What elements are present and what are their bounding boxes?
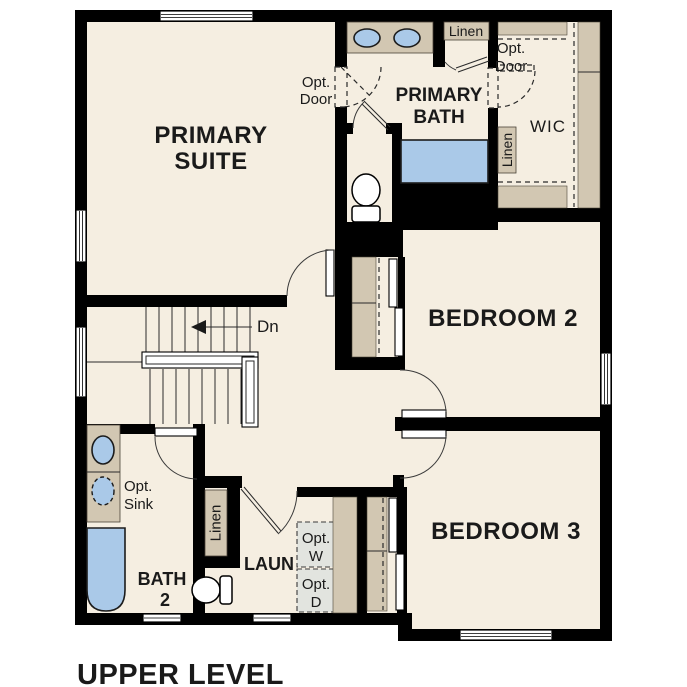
wall bbox=[337, 222, 403, 257]
wall bbox=[335, 257, 352, 360]
closet-shelf bbox=[367, 497, 387, 611]
label-laundry: LAUN bbox=[244, 554, 294, 574]
label-linen-top: Linen bbox=[449, 23, 483, 39]
wall bbox=[393, 475, 404, 488]
wall bbox=[75, 10, 87, 625]
closet-rod bbox=[578, 22, 600, 208]
label-bath2: 2 bbox=[160, 590, 170, 610]
label-opt-dryer: D bbox=[311, 594, 322, 611]
window bbox=[76, 327, 86, 397]
toilet-tank bbox=[220, 576, 232, 604]
wall bbox=[488, 208, 612, 222]
laundry-counter bbox=[333, 497, 357, 613]
label-opt-door-wic: Opt. bbox=[497, 40, 525, 57]
window bbox=[460, 630, 552, 640]
window bbox=[601, 353, 611, 405]
label-primary-bath: BATH bbox=[413, 107, 464, 128]
bypass-door bbox=[389, 498, 397, 552]
closet-rod bbox=[498, 186, 567, 208]
label-bedroom2: BEDROOM 2 bbox=[428, 305, 578, 332]
page-title: UPPER LEVEL bbox=[77, 659, 284, 687]
optional-sink-icon bbox=[92, 477, 114, 505]
label-bedroom3: BEDROOM 3 bbox=[431, 518, 581, 545]
window bbox=[160, 11, 253, 21]
label-primary-bath: PRIMARY bbox=[396, 85, 483, 106]
wall bbox=[87, 295, 287, 307]
closet-rod bbox=[498, 22, 567, 35]
wall bbox=[75, 10, 612, 22]
label-opt-washer: Opt. bbox=[302, 530, 330, 547]
bypass-door bbox=[396, 554, 404, 610]
bypass-door bbox=[395, 308, 403, 356]
wall bbox=[357, 497, 367, 613]
door-leaf bbox=[155, 428, 197, 436]
toilet-icon bbox=[352, 174, 380, 206]
label-linen-hall: Linen bbox=[208, 505, 225, 542]
label-linen-wic: Linen bbox=[499, 133, 515, 167]
wall bbox=[335, 22, 347, 67]
bathtub-icon bbox=[401, 140, 488, 183]
sink-icon bbox=[354, 29, 380, 47]
bypass-door bbox=[389, 259, 397, 307]
door-leaf bbox=[402, 410, 446, 418]
label-opt-door-bath: Door bbox=[300, 91, 333, 108]
label-opt-door-bath: Opt. bbox=[302, 74, 330, 91]
window bbox=[143, 614, 181, 622]
wall bbox=[297, 487, 407, 497]
wall bbox=[227, 486, 240, 562]
toilet-icon bbox=[192, 577, 220, 603]
label-opt-dryer: Opt. bbox=[302, 576, 330, 593]
wall bbox=[75, 613, 410, 625]
wall bbox=[600, 10, 612, 641]
sink-icon bbox=[92, 436, 114, 464]
wall bbox=[392, 183, 498, 230]
door-leaf bbox=[326, 250, 334, 296]
label-bath2: BATH bbox=[138, 569, 187, 589]
floor-plan-page: PRIMARY SUITE PRIMARY BATH WIC BEDROOM 2… bbox=[0, 0, 687, 687]
window bbox=[76, 210, 86, 262]
sink-icon bbox=[394, 29, 420, 47]
wall bbox=[395, 417, 612, 431]
toilet-tank bbox=[352, 206, 380, 222]
closet-shelf bbox=[352, 257, 376, 357]
door-leaf bbox=[402, 430, 446, 438]
stair-railing bbox=[142, 352, 258, 368]
label-opt-door-wic: Door bbox=[495, 58, 528, 75]
shower-icon bbox=[87, 528, 125, 611]
wall bbox=[193, 556, 240, 568]
stair-railing bbox=[242, 357, 258, 427]
wall bbox=[345, 123, 353, 134]
label-primary-suite: SUITE bbox=[174, 148, 247, 175]
label-primary-suite: PRIMARY bbox=[154, 122, 267, 149]
label-stairs-dn: Dn bbox=[257, 317, 279, 336]
wall bbox=[433, 22, 445, 67]
label-opt-washer: W bbox=[309, 548, 324, 565]
window bbox=[253, 614, 291, 622]
label-opt-sink: Sink bbox=[124, 496, 154, 513]
floor-plan-drawing: PRIMARY SUITE PRIMARY BATH WIC BEDROOM 2… bbox=[0, 0, 687, 687]
label-wic: WIC bbox=[530, 117, 566, 136]
label-opt-sink: Opt. bbox=[124, 478, 152, 495]
wall bbox=[335, 357, 405, 370]
